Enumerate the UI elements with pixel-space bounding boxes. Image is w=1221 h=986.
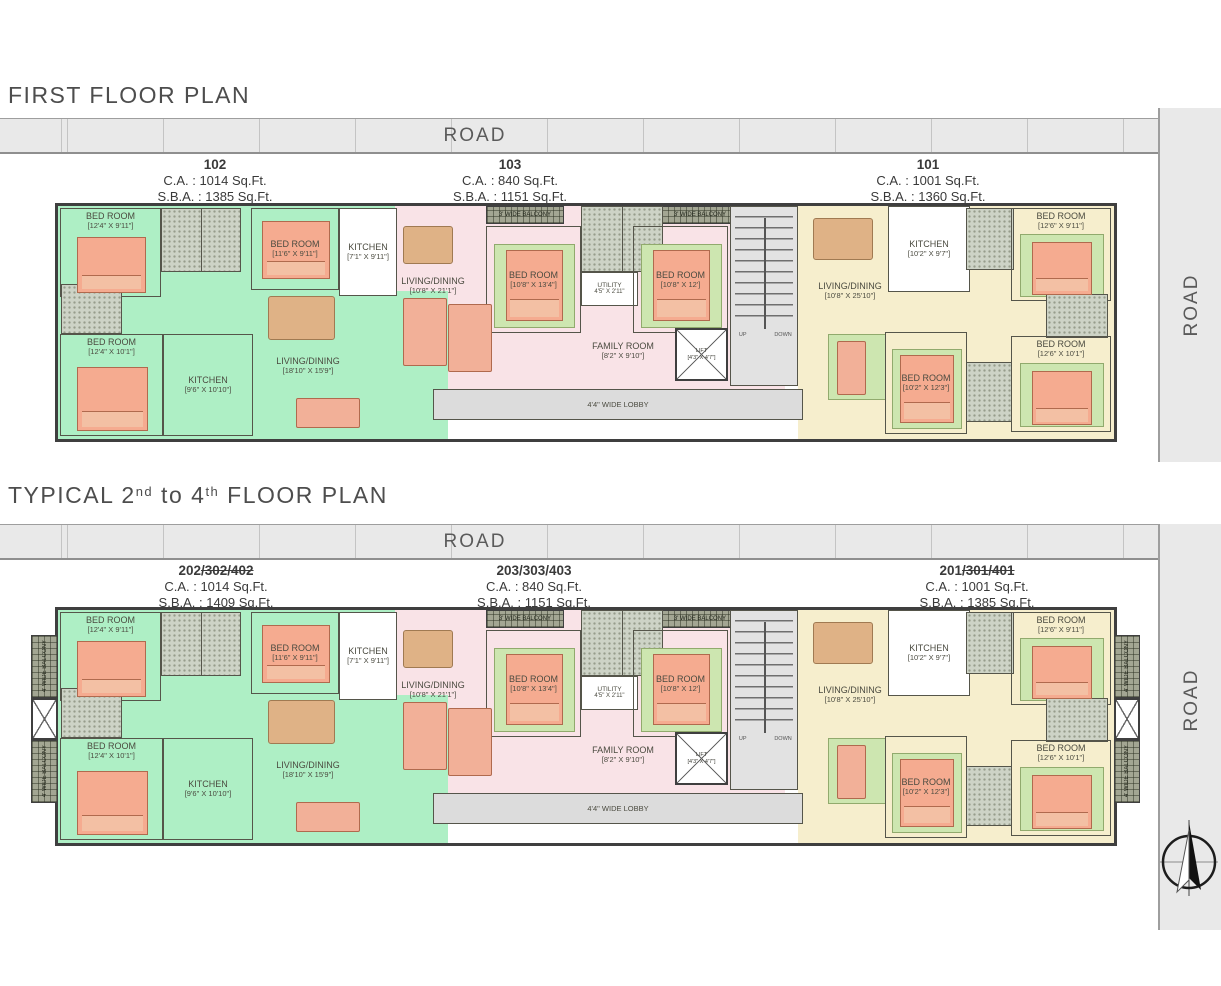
room-dimension: [18'10" X 15'9"] <box>283 770 334 779</box>
unit-number: 101 <box>917 157 940 172</box>
room-dimension: [10'2" X 9'7"] <box>908 653 950 662</box>
unit-carpet-area: C.A. : 1014 Sq.Ft. <box>125 173 305 188</box>
unit-carpet-area: C.A. : 840 Sq.Ft. <box>444 579 624 594</box>
room-living-dining-label: LIVING/DINING [10'8" X 21'1"] <box>378 672 488 708</box>
room-label: BED ROOM <box>87 741 136 751</box>
room-label: LIVING/DINING <box>401 276 465 286</box>
room-label: FAMILY ROOM <box>592 341 654 351</box>
road-band-top-typical: ROAD <box>0 524 1158 560</box>
sofa-mat <box>828 738 886 804</box>
room-bedroom: BED ROOM [10'8" X 12'] <box>633 630 728 737</box>
stairs-up-label: UP <box>739 736 747 742</box>
unit-number-struck: /301/401 <box>962 563 1015 578</box>
sofa-mat <box>828 334 886 400</box>
lobby-label: 4'4" WIDE LOBBY <box>587 400 648 409</box>
unit-carpet-area: C.A. : 840 Sq.Ft. <box>420 173 600 188</box>
room-kitchen: KITCHEN [10'2" X 9'7"] <box>888 610 970 696</box>
dining-table-furniture <box>403 630 453 668</box>
room-dimension: [12'6" X 9'11"] <box>1038 625 1084 634</box>
room-dimension: [10'2" X 12'3"] <box>903 383 950 392</box>
balcony-label: 4' WIDE BALCONY <box>42 745 48 797</box>
room-bedroom: BED ROOM [11'6" X 9'11"] <box>251 612 339 694</box>
bed-furniture <box>1032 646 1093 699</box>
bed-furniture <box>77 237 146 293</box>
unit-label-202: 202/302/402 C.A. : 1014 Sq.Ft. S.B.A. : … <box>126 563 306 610</box>
toilet <box>966 208 1014 270</box>
first-floor-title: FIRST FLOOR PLAN <box>8 82 250 109</box>
unit-number: 201 <box>939 563 962 578</box>
balcony: 3' WIDE BALCONY <box>486 610 564 628</box>
room-bedroom: BED ROOM [10'8" X 12'] <box>633 226 728 333</box>
room-dimension: [10'2" X 9'7"] <box>908 249 950 258</box>
room-label: UTILITY <box>597 686 621 693</box>
bed-furniture <box>77 641 146 697</box>
room-living-dining-label: LIVING/DINING [18'10" X 15'9"] <box>243 346 373 386</box>
room-bedroom: BED ROOM [12'6" X 10'1"] <box>1011 336 1111 432</box>
room-dimension: [10'8" X 25'10"] <box>825 695 876 704</box>
room-label: KITCHEN <box>348 646 388 656</box>
room-bedroom: BED ROOM [10'8" X 13'4"] <box>486 630 581 737</box>
unit-carpet-area: C.A. : 1001 Sq.Ft. <box>887 579 1067 594</box>
room-dimension: [10'8" X 12'] <box>661 684 701 693</box>
toilet <box>1046 294 1108 338</box>
balcony-label: 3' WIDE BALCONY <box>499 212 551 218</box>
bed-furniture <box>1032 775 1093 830</box>
room-living-dining-label: LIVING/DINING [10'8" X 21'1"] <box>378 268 488 304</box>
room-bedroom: BED ROOM [12'6" X 10'1"] <box>1011 740 1111 836</box>
room-dimension: [10'8" X 12'] <box>661 280 701 289</box>
lift-dimension: [4'3" X 4'7"] <box>687 759 715 766</box>
unit-number: 102 <box>204 157 227 172</box>
stairs-down-label: DOWN <box>774 332 791 338</box>
lift-label: LIFT <box>696 348 707 355</box>
dining-table-furniture <box>813 218 873 260</box>
balcony: 3' WIDE BALCONY <box>486 206 564 224</box>
typical-floor-title: TYPICAL 2nd to 4th FLOOR PLAN <box>8 482 388 509</box>
room-bedroom: BED ROOM [12'4" X 10'1"] <box>60 738 163 840</box>
room-dimension: [10'8" X 21'1"] <box>410 286 457 295</box>
room-label: LIVING/DINING <box>276 356 340 366</box>
sofa-furniture <box>403 298 447 366</box>
room-dimension: [7'1" X 9'11"] <box>347 656 389 665</box>
room-family-label: FAMILY ROOM [8'2" X 9'10"] <box>563 736 683 774</box>
room-dimension: [7'1" X 9'11"] <box>347 252 389 261</box>
balcony-label: 4' WIDE BALCONY <box>42 640 48 692</box>
stair-treads <box>735 620 793 727</box>
room-dimension: [12'6" X 10'1"] <box>1038 753 1085 762</box>
unit-superbuilt-area: S.B.A. : 1151 Sq.Ft. <box>420 189 600 204</box>
room-dimension: [11'6" X 9'11"] <box>272 249 317 258</box>
dining-table-furniture <box>813 622 873 664</box>
room-dimension: [11'6" X 9'11"] <box>272 653 317 662</box>
road-label: ROAD <box>1181 274 1203 337</box>
room-label: BED ROOM <box>1036 743 1085 753</box>
bed-furniture <box>1032 242 1093 295</box>
lobby: 4'4" WIDE LOBBY <box>433 389 803 420</box>
unit-number-struck: /302/402 <box>201 563 254 578</box>
side-balcony: 4' WIDE BALCONY <box>31 740 58 803</box>
room-dimension: [9'6" X 10'10"] <box>185 385 232 394</box>
unit-carpet-area: C.A. : 1014 Sq.Ft. <box>126 579 306 594</box>
room-dimension: [10'8" X 21'1"] <box>410 690 457 699</box>
room-label: KITCHEN <box>188 779 228 789</box>
room-label: BED ROOM <box>86 211 135 221</box>
unit-label-103: 103 C.A. : 840 Sq.Ft. S.B.A. : 1151 Sq.F… <box>420 157 600 204</box>
title-text: FLOOR PLAN <box>219 482 388 508</box>
room-living-dining-label: LIVING/DINING [10'8" X 25'10"] <box>800 676 900 714</box>
first-floor-plan-drawing: BED ROOM [12'4" X 9'11"] BED ROOM [11'6"… <box>55 203 1117 442</box>
title-superscript: nd <box>136 484 153 499</box>
title-text: FIRST FLOOR PLAN <box>8 82 250 108</box>
room-label: BED ROOM <box>1036 615 1085 625</box>
lift-label: LIFT <box>696 752 707 759</box>
room-kitchen: KITCHEN [9'6" X 10'10"] <box>163 738 253 840</box>
toilet-pair <box>161 612 241 676</box>
lobby: 4'4" WIDE LOBBY <box>433 793 803 824</box>
room-dimension: [12'6" X 9'11"] <box>1038 221 1084 230</box>
balcony-label: 3' WIDE BALCONY <box>674 616 726 622</box>
road-band-top-first: ROAD <box>0 118 1158 154</box>
road-band-side-typical: ROAD <box>1158 524 1221 930</box>
room-utility: UTILITY 4'5" X 2'11" <box>581 272 638 306</box>
room-dimension: [12'4" X 9'11"] <box>88 625 134 634</box>
room-bedroom: BED ROOM [10'2" X 12'3"] <box>885 332 967 434</box>
side-balcony: 4' WIDE BALCONY <box>31 635 58 698</box>
room-label: LIVING/DINING <box>401 680 465 690</box>
sofa-furniture <box>403 702 447 770</box>
room-label: KITCHEN <box>909 239 949 249</box>
title-text: to 4 <box>153 482 205 508</box>
unit-superbuilt-area: S.B.A. : 1360 Sq.Ft. <box>838 189 1018 204</box>
sofa-furniture <box>448 708 492 776</box>
room-family-label: FAMILY ROOM [8'2" X 9'10"] <box>563 332 683 370</box>
room-label: UTILITY <box>597 282 621 289</box>
dining-table-furniture <box>268 700 335 744</box>
unit-number: 203/303/403 <box>496 563 571 578</box>
typical-floor-plan-drawing: BED ROOM [12'4" X 9'11"] BED ROOM [11'6"… <box>55 607 1117 846</box>
room-label: BED ROOM <box>901 777 950 787</box>
road-band-side-first: ROAD <box>1158 108 1221 462</box>
title-text: TYPICAL 2 <box>8 482 136 508</box>
toilet-pair <box>161 208 241 272</box>
stair-treads <box>735 216 793 323</box>
road-label: ROAD <box>430 531 520 553</box>
page-canvas: FIRST FLOOR PLAN ROAD 102 C.A. : 1014 Sq… <box>0 0 1221 986</box>
room-living-dining-label: LIVING/DINING [10'8" X 25'10"] <box>800 272 900 310</box>
room-dimension: [10'8" X 25'10"] <box>825 291 876 300</box>
room-dimension: [12'4" X 9'11"] <box>88 221 134 230</box>
room-dimension: [10'8" X 13'4"] <box>510 684 557 693</box>
room-bedroom: BED ROOM [12'6" X 9'11"] <box>1011 208 1111 301</box>
stairs-down-label: DOWN <box>774 736 791 742</box>
duct-shaft <box>1114 698 1140 740</box>
room-label: LIVING/DINING <box>818 685 882 695</box>
unit-number: 202 <box>178 563 201 578</box>
staircase: UP DOWN <box>730 206 798 386</box>
unit-label-203: 203/303/403 C.A. : 840 Sq.Ft. S.B.A. : 1… <box>444 563 624 610</box>
road-label: ROAD <box>1181 669 1203 732</box>
balcony: 3' WIDE BALCONY <box>661 206 739 224</box>
sofa-furniture <box>296 802 360 832</box>
room-bedroom: BED ROOM [12'6" X 9'11"] <box>1011 612 1111 705</box>
room-dimension: 4'5" X 2'11" <box>594 693 624 701</box>
room-label: BED ROOM <box>87 337 136 347</box>
staircase: UP DOWN <box>730 610 798 790</box>
room-dimension: [12'6" X 10'1"] <box>1038 349 1085 358</box>
room-living-dining-label: LIVING/DINING [18'10" X 15'9"] <box>243 750 373 790</box>
balcony-label: 4' WIDE BALCONY <box>1124 640 1130 692</box>
room-bedroom: BED ROOM [10'8" X 13'4"] <box>486 226 581 333</box>
duct-shaft <box>31 698 58 740</box>
room-label: FAMILY ROOM <box>592 745 654 755</box>
room-label: BED ROOM <box>1036 211 1085 221</box>
balcony: 3' WIDE BALCONY <box>661 610 739 628</box>
unit-label-101: 101 C.A. : 1001 Sq.Ft. S.B.A. : 1360 Sq.… <box>838 157 1018 204</box>
room-dimension: [10'2" X 12'3"] <box>903 787 950 796</box>
room-label: BED ROOM <box>656 270 705 280</box>
toilet <box>966 766 1012 826</box>
bed-furniture <box>77 367 148 431</box>
lobby-label: 4'4" WIDE LOBBY <box>587 804 648 813</box>
lift-dimension: [4'3" X 4'7"] <box>687 355 715 362</box>
balcony-label: 3' WIDE BALCONY <box>674 212 726 218</box>
balcony-label: 3' WIDE BALCONY <box>499 616 551 622</box>
unit-label-102: 102 C.A. : 1014 Sq.Ft. S.B.A. : 1385 Sq.… <box>125 157 305 204</box>
bed-furniture <box>1032 371 1093 426</box>
room-dimension: [9'6" X 10'10"] <box>185 789 232 798</box>
sofa-furniture <box>448 304 492 372</box>
toilet <box>966 612 1014 674</box>
north-compass-icon <box>1160 816 1218 916</box>
room-label: BED ROOM <box>656 674 705 684</box>
room-label: BED ROOM <box>509 674 558 684</box>
room-label: BED ROOM <box>270 239 319 249</box>
room-label: BED ROOM <box>901 373 950 383</box>
bed-furniture <box>77 771 148 835</box>
room-kitchen: KITCHEN [10'2" X 9'7"] <box>888 206 970 292</box>
room-dimension: [8'2" X 9'10"] <box>602 755 644 764</box>
room-dimension: 4'5" X 2'11" <box>594 289 624 297</box>
room-label: BED ROOM <box>86 615 135 625</box>
room-label: BED ROOM <box>1036 339 1085 349</box>
room-label: BED ROOM <box>509 270 558 280</box>
sofa-furniture <box>837 745 866 798</box>
sofa-furniture <box>837 341 866 394</box>
room-dimension: [8'2" X 9'10"] <box>602 351 644 360</box>
room-dimension: [18'10" X 15'9"] <box>283 366 334 375</box>
sofa-furniture <box>296 398 360 428</box>
title-superscript: th <box>205 484 219 499</box>
toilet <box>1046 698 1108 742</box>
unit-superbuilt-area: S.B.A. : 1385 Sq.Ft. <box>125 189 305 204</box>
room-bedroom: BED ROOM [12'4" X 10'1"] <box>60 334 163 436</box>
room-label: KITCHEN <box>348 242 388 252</box>
road-label: ROAD <box>430 125 520 147</box>
toilet <box>966 362 1012 422</box>
unit-number: 103 <box>499 157 522 172</box>
dining-table-furniture <box>268 296 335 340</box>
unit-label-201: 201/301/401 C.A. : 1001 Sq.Ft. S.B.A. : … <box>887 563 1067 610</box>
balcony-label: 4' WIDE BALCONY <box>1124 745 1130 797</box>
room-label: KITCHEN <box>188 375 228 385</box>
side-balcony: 4' WIDE BALCONY <box>1114 635 1140 698</box>
room-bedroom: BED ROOM [10'2" X 12'3"] <box>885 736 967 838</box>
room-label: BED ROOM <box>270 643 319 653</box>
room-label: LIVING/DINING <box>276 760 340 770</box>
side-balcony: 4' WIDE BALCONY <box>1114 740 1140 803</box>
room-dimension: [10'8" X 13'4"] <box>510 280 557 289</box>
room-kitchen: KITCHEN [9'6" X 10'10"] <box>163 334 253 436</box>
room-utility: UTILITY 4'5" X 2'11" <box>581 676 638 710</box>
unit-carpet-area: C.A. : 1001 Sq.Ft. <box>838 173 1018 188</box>
room-label: KITCHEN <box>909 643 949 653</box>
room-dimension: [12'4" X 10'1"] <box>88 347 135 356</box>
room-dimension: [12'4" X 10'1"] <box>88 751 135 760</box>
dining-table-furniture <box>403 226 453 264</box>
room-label: LIVING/DINING <box>818 281 882 291</box>
room-bedroom: BED ROOM [11'6" X 9'11"] <box>251 208 339 290</box>
stairs-up-label: UP <box>739 332 747 338</box>
